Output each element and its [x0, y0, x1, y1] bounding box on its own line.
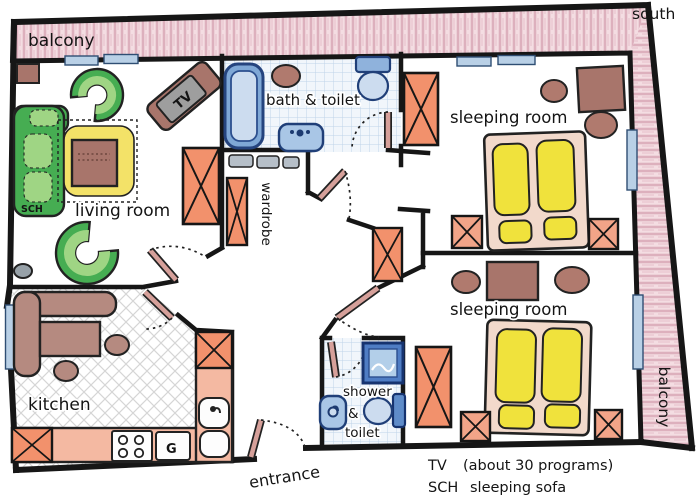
south-label: south: [632, 5, 675, 23]
nightstand: [589, 219, 618, 249]
washbasin: [279, 124, 323, 151]
pillow: [544, 217, 577, 240]
dishwasher: G: [156, 432, 190, 460]
chair: [452, 271, 480, 293]
wardrobe-cabinet: [416, 347, 451, 427]
wardrobe-cabinet: [404, 73, 438, 145]
hall-shelf: [229, 155, 299, 168]
laundry-basket: [272, 65, 300, 87]
sleeping-room-2-label: sleeping room: [450, 300, 567, 319]
kitchen-label: kitchen: [28, 395, 91, 415]
chair: [105, 335, 129, 355]
mattress: [495, 329, 536, 403]
chair: [555, 267, 589, 293]
legend-sch-key: SCH: [428, 480, 458, 496]
nightstand: [452, 216, 482, 248]
sleeping-sofa: SCH: [14, 106, 68, 216]
sleeping1-balcony-door-window: [498, 56, 535, 65]
hall-vestibule-door: [320, 171, 350, 219]
wardrobe-cabinet: [227, 178, 247, 245]
sleeping-room-2-furniture: [416, 262, 622, 441]
balcony-top-label: balcony: [28, 31, 95, 51]
wardrobe-label: wardrobe: [258, 182, 274, 246]
sleeping1-balcony-door-window: [457, 57, 491, 66]
legend-tv-value: (about 30 programs): [463, 458, 613, 474]
sleeping2-balcony-door-window: [633, 295, 643, 369]
floor-plan-page: TV SCH: [0, 0, 700, 500]
side-table: [17, 64, 39, 83]
chair: [54, 361, 78, 381]
table: [487, 262, 538, 300]
tv-stand: TV: [145, 59, 224, 132]
nightstand: [595, 410, 622, 439]
legend: TV (about 30 programs) SCH sleeping sofa: [427, 458, 613, 496]
seating-group: [58, 120, 137, 202]
nightstand: [461, 412, 490, 441]
pillow: [499, 405, 535, 429]
living-room-label: living room: [75, 201, 170, 221]
armchair: [56, 222, 118, 284]
sleeping-room-1-label: sleeping room: [450, 108, 567, 127]
base-cabinet: [196, 332, 232, 368]
table: [577, 66, 625, 112]
mattress: [492, 143, 529, 215]
living-room-door: [150, 246, 206, 280]
mattress: [536, 140, 575, 212]
corner-bench: [14, 292, 40, 376]
living-room-furniture: TV SCH: [14, 59, 223, 284]
wardrobe-cabinet: [373, 228, 402, 281]
mattress: [541, 328, 582, 402]
double-bed: [485, 320, 592, 436]
bathtub: [225, 64, 263, 148]
shower-toilet-label: toilet: [345, 425, 380, 441]
washbasin: [320, 396, 346, 429]
work-surface: [200, 431, 229, 457]
shower-toilet-label: shower: [343, 384, 392, 400]
stool: [14, 264, 32, 278]
coffee-table: [72, 140, 117, 186]
entrance-label: entrance: [248, 462, 322, 492]
pillow: [545, 404, 581, 428]
sch-text: SCH: [21, 204, 43, 215]
chair: [541, 80, 567, 102]
armchair: [71, 69, 123, 121]
sleeping1-side-window: [627, 130, 637, 190]
entrance-door: [251, 420, 305, 457]
legend-sch-value: sleeping sofa: [470, 480, 566, 496]
double-bed: [484, 131, 589, 250]
floor-plan-drawing: TV SCH: [0, 0, 700, 500]
base-cabinet: [12, 428, 52, 462]
chair: [585, 112, 617, 138]
living-balcony-door-window: [65, 56, 98, 65]
balcony-right-label: balcony: [655, 367, 673, 428]
stove: [112, 431, 152, 461]
living-balcony-door-window: [104, 55, 138, 64]
sleeping-room-1-furniture: [404, 66, 625, 251]
pillow: [499, 220, 532, 243]
shower-toilet-label: &: [348, 406, 359, 422]
kitchen-sink: [199, 398, 229, 428]
toilet: [356, 57, 390, 100]
sleeping2-door: [337, 288, 379, 337]
bath-toilet-label: bath & toilet: [266, 91, 360, 109]
legend-tv-key: TV: [427, 458, 447, 474]
shower-stall: [363, 343, 403, 383]
g-appliance-text: G: [166, 442, 177, 457]
wardrobe-cabinet: [183, 148, 219, 224]
kitchen-table: [40, 322, 100, 356]
